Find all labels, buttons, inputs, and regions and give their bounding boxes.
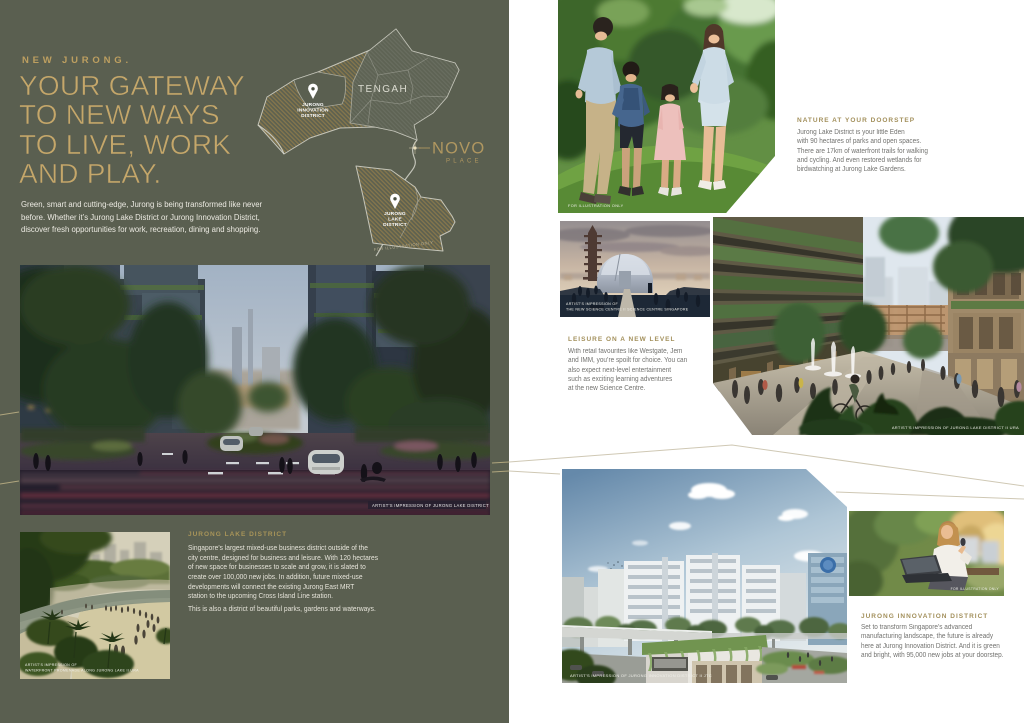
svg-text:LAKE: LAKE <box>388 217 402 223</box>
svg-text:FOR ILLUSTRATION ONLY: FOR ILLUSTRATION ONLY <box>951 587 1000 591</box>
svg-text:WATERFRONT PROMENADE ALONG JUR: WATERFRONT PROMENADE ALONG JURONG LAKE I… <box>25 669 139 673</box>
svg-text:TENGAH: TENGAH <box>358 84 408 95</box>
svg-text:NOVO: NOVO <box>432 140 485 158</box>
svg-text:JURONG: JURONG <box>384 211 406 217</box>
svg-text:FOR ILLUSTRATION ONLY: FOR ILLUSTRATION ONLY <box>568 204 624 208</box>
svg-text:THE NEW SCIENCE CENTRE II SCIE: THE NEW SCIENCE CENTRE II SCIENCE CENTRE… <box>566 308 689 312</box>
svg-text:DISTRICT: DISTRICT <box>383 222 407 228</box>
svg-text:INNOVATION: INNOVATION <box>297 108 329 114</box>
svg-text:ARTIST'S IMPRESSION OF JURONG: ARTIST'S IMPRESSION OF JURONG LAKE DISTR… <box>892 425 1019 430</box>
svg-text:ARTIST'S IMPRESSION OF: ARTIST'S IMPRESSION OF <box>566 302 618 306</box>
svg-text:DISTRICT: DISTRICT <box>301 113 325 119</box>
svg-text:ARTIST'S IMPRESSION OF JURONG: ARTIST'S IMPRESSION OF JURONG LAKE DISTR… <box>372 503 490 508</box>
svg-text:PLACE: PLACE <box>446 159 482 165</box>
svg-text:ARTIST'S IMPRESSION OF JURONG: ARTIST'S IMPRESSION OF JURONG INNOVATION… <box>570 673 712 678</box>
svg-text:JURONG: JURONG <box>302 102 324 108</box>
svg-text:ARTIST'S IMPRESSION OF: ARTIST'S IMPRESSION OF <box>25 663 77 667</box>
